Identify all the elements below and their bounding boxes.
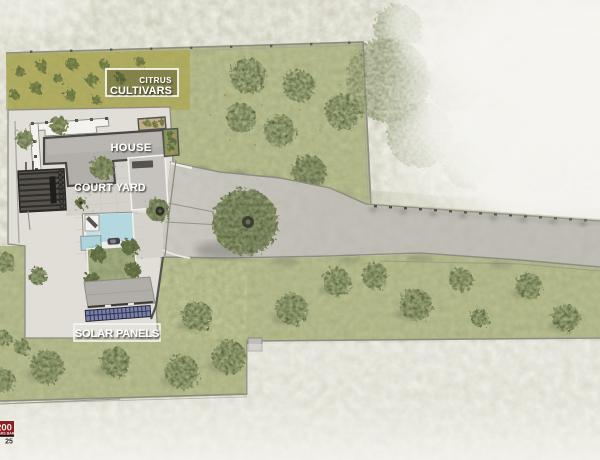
svg-text:25: 25 (5, 439, 13, 446)
svg-text:HOUSE: HOUSE (110, 142, 151, 154)
svg-text:YEARS BAR: YEARS BAR (0, 432, 15, 436)
svg-text:CITRUS: CITRUS (139, 76, 172, 85)
svg-text:COURT YARD: COURT YARD (74, 182, 146, 194)
svg-text:CULTIVARS: CULTIVARS (110, 85, 172, 97)
svg-text:SOLAR PANELS: SOLAR PANELS (75, 328, 160, 340)
